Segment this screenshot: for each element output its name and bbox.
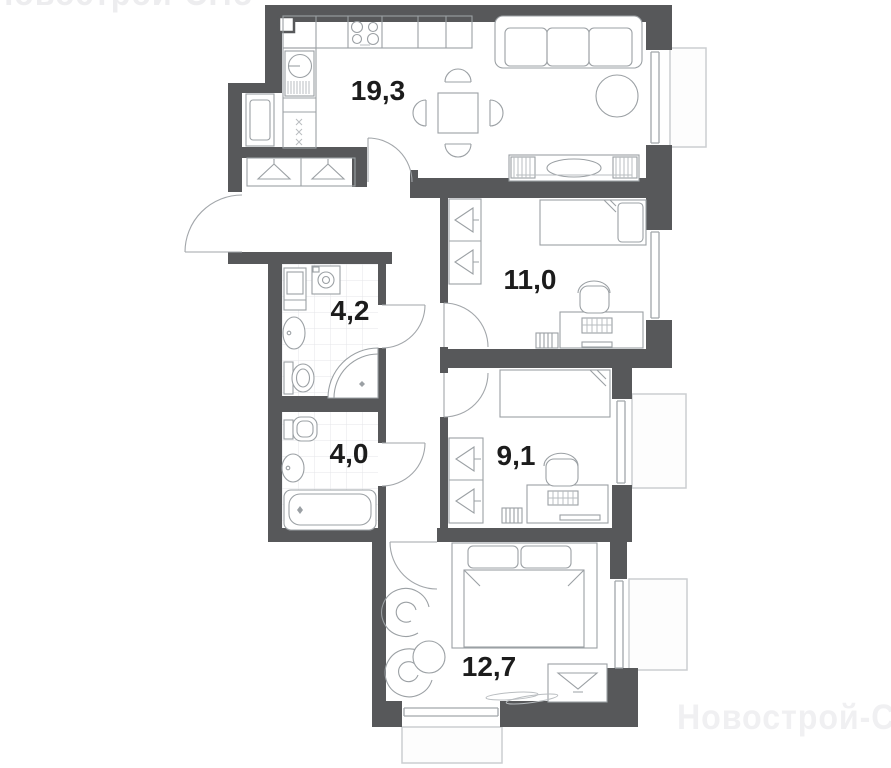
washing-machine-icon [312, 266, 340, 294]
vent-shaft [279, 17, 294, 32]
living-area [413, 16, 642, 181]
radiator-2-icon [502, 508, 522, 523]
stove-icon [352, 22, 379, 46]
label-bathroom: 4,2 [331, 295, 370, 326]
window-living [651, 52, 659, 143]
label-room-12: 12,7 [462, 651, 517, 682]
cabinet-icon [284, 268, 306, 310]
bedroom-door [444, 303, 488, 347]
armchair-icon [382, 588, 429, 636]
toilet-icon [284, 362, 314, 394]
hallway-area [247, 158, 355, 186]
window-bedroom [651, 232, 659, 318]
window-room-9 [617, 401, 625, 483]
bathtub-icon [284, 490, 376, 530]
bathroom-42-door [382, 305, 425, 348]
double-bed-icon [452, 543, 597, 648]
bedroom-wardrobe-icon [449, 199, 481, 284]
entrance-door [185, 195, 242, 252]
radiator-icon [536, 333, 558, 348]
balcony-room-12-side [629, 579, 687, 670]
single-bed-2-icon [500, 370, 610, 417]
desk-2-icon [527, 485, 608, 523]
hall-wardrobe-icon [247, 158, 355, 186]
window-room-12-bottom [404, 708, 498, 716]
balcony-room-9 [632, 394, 686, 488]
tv-stand-icon [509, 155, 639, 181]
side-table-icon [413, 641, 445, 673]
toilet-2-icon [284, 417, 317, 441]
window-room-12-side [615, 581, 623, 668]
fridge-icon [246, 94, 274, 146]
watermark-fragment: Новострой-СПб [0, 0, 253, 14]
balcony-living [670, 48, 706, 147]
desk-chair-icon [578, 281, 610, 313]
round-table-icon [596, 75, 638, 117]
room9-wardrobe-icon [449, 438, 483, 523]
label-room-9: 9,1 [497, 440, 536, 471]
kitchen-sink-icon [285, 51, 314, 96]
label-bath-wc: 4,0 [330, 438, 369, 469]
room-9-door [444, 373, 488, 417]
desk-icon [560, 312, 643, 348]
single-bed-icon [540, 200, 646, 245]
bath-sink-2-icon [282, 454, 304, 482]
floor-plan: 19,3 11,0 4,2 4,0 9,1 12,7 Новострой-СПб… [0, 0, 891, 768]
bathroom-40-door [382, 443, 425, 486]
dining-set-icon [413, 69, 503, 157]
desk-chair-2-icon [544, 453, 578, 486]
sofa-icon [495, 16, 642, 68]
label-kitchen-living: 19,3 [351, 75, 406, 106]
floor-plan-svg: 19,3 11,0 4,2 4,0 9,1 12,7 [0, 0, 891, 768]
watermark-text: Новострой-СПб [677, 698, 891, 738]
dishwasher-icon [296, 119, 302, 145]
bath-sink-icon [283, 317, 305, 349]
label-bedroom: 11,0 [504, 264, 557, 295]
kitchen-door [368, 138, 412, 182]
balcony-room-12-bottom [402, 727, 502, 763]
room-12-door [390, 542, 437, 589]
